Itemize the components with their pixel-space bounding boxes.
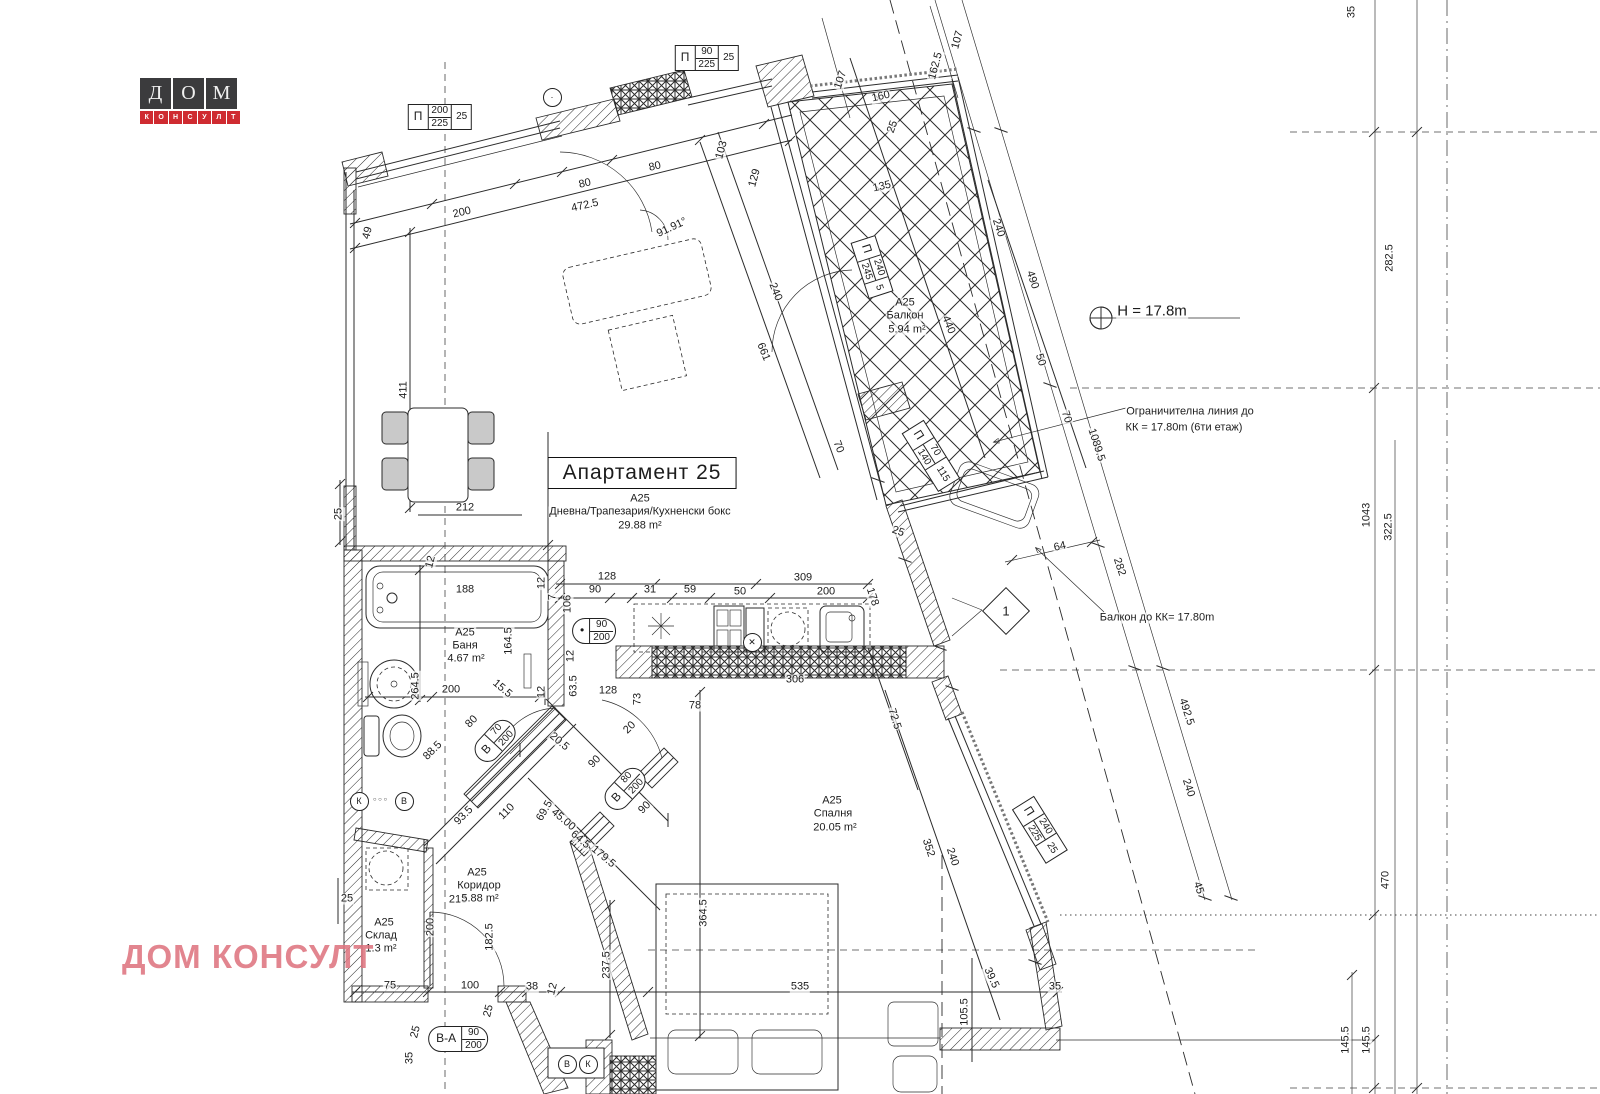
dim-label: 440 bbox=[939, 314, 957, 337]
circle-symbol: ✕ bbox=[743, 633, 762, 652]
dim-label: 164.5 bbox=[504, 626, 515, 656]
room-label: Дневна/Трапезария/Кухненски бокс bbox=[548, 507, 731, 518]
dim-label: 160 bbox=[870, 89, 892, 104]
dim-label: 93.5 bbox=[452, 804, 476, 828]
circle-symbol: В bbox=[558, 1055, 577, 1074]
dim-label: 25 bbox=[334, 507, 345, 521]
dim-label: 182.5 bbox=[485, 922, 496, 952]
annotation: Ограничителна линия до bbox=[1125, 407, 1255, 418]
dim-label: 535 bbox=[790, 982, 810, 993]
apartment-title: Апартамент 25 bbox=[548, 457, 737, 489]
dim-label: 70 bbox=[830, 438, 846, 455]
dim-label: 240 bbox=[766, 281, 784, 304]
dim-label: 145.5 bbox=[1362, 1025, 1373, 1055]
logo-letter: О bbox=[173, 78, 204, 109]
room-label: 4.67 m² bbox=[446, 654, 485, 665]
dim-label: 100 bbox=[460, 981, 480, 992]
logo-sub-letter: С bbox=[183, 111, 196, 124]
dim-label: 411 bbox=[399, 380, 410, 400]
dim-label: 128 bbox=[597, 572, 617, 583]
dim-label: 50 bbox=[733, 587, 747, 598]
dim-label: 59 bbox=[683, 585, 697, 596]
circle-symbol: В bbox=[395, 792, 414, 811]
dim-label: 200 bbox=[426, 917, 437, 937]
dim-label: 661 bbox=[754, 341, 772, 364]
dim-label: 492.5 bbox=[1176, 696, 1196, 727]
dim-label: 105.5 bbox=[960, 997, 971, 1027]
dim-label: 38 bbox=[525, 982, 539, 993]
dim-label: 240 bbox=[1180, 777, 1197, 800]
circle-symbol: К bbox=[350, 792, 369, 811]
dim-label: 240 bbox=[944, 846, 961, 869]
dim-label: 135 bbox=[871, 179, 893, 194]
dim-label: 73 bbox=[633, 692, 644, 706]
door-tag: В-А90200 bbox=[428, 1026, 488, 1052]
dim-label: 25 bbox=[889, 524, 906, 539]
room-label: Баня bbox=[451, 641, 478, 652]
room-label: Коридор bbox=[456, 881, 501, 892]
dim-label: 78 bbox=[688, 701, 702, 712]
dim-label: 200 bbox=[441, 685, 461, 696]
room-label: А25 bbox=[821, 796, 843, 807]
dim-label: 88.5 bbox=[421, 739, 445, 763]
dim-label: 12 bbox=[537, 576, 548, 590]
room-label: Балкон bbox=[886, 311, 925, 322]
dim-label: 106 bbox=[563, 594, 574, 614]
dim-label: 1043 bbox=[1362, 502, 1373, 528]
dim-label: 162.5 bbox=[927, 50, 945, 81]
room-label: А25 bbox=[466, 868, 488, 879]
height-annotation: H = 17.8m bbox=[1116, 304, 1188, 319]
room-label: 5.88 m² bbox=[460, 894, 499, 905]
dim-label: 90 bbox=[586, 753, 604, 771]
dim-label: 1089.5 bbox=[1085, 426, 1106, 463]
logo-letter: Д bbox=[140, 78, 171, 109]
logo-sub-letter: О bbox=[154, 111, 167, 124]
dim-label: 25 bbox=[409, 1024, 423, 1041]
dim-label: 240 bbox=[990, 217, 1007, 240]
room-label: 5.94 m² bbox=[887, 325, 926, 336]
dim-label: 200 bbox=[816, 587, 836, 598]
room-label: 20.05 m² bbox=[812, 823, 857, 834]
dim-label: 35 bbox=[1048, 982, 1062, 993]
dim-label: 309 bbox=[793, 573, 813, 584]
dim-label: 12 bbox=[537, 685, 548, 699]
window-tag: П2402455 bbox=[851, 235, 894, 299]
dim-label: 12 bbox=[424, 554, 438, 571]
dim-label: 64.5 bbox=[567, 828, 592, 851]
annotation: Балкон до КК= 17.80m bbox=[1099, 613, 1216, 624]
room-label: А25 bbox=[629, 494, 651, 505]
room-label: А25 bbox=[373, 918, 395, 929]
dim-label: 75 bbox=[383, 981, 397, 992]
circle-symbol: · bbox=[543, 88, 562, 107]
window-tag: П24022525 bbox=[1012, 796, 1068, 864]
dim-label: 188 bbox=[455, 585, 475, 596]
dim-label: 179.5 bbox=[588, 843, 618, 870]
watermark-text: ДОМ КОНСУЛТ bbox=[122, 938, 374, 976]
dim-label: 20 bbox=[621, 719, 639, 737]
dim-label: 282 bbox=[1111, 556, 1128, 579]
company-logo: ДОМКОНСУЛТ bbox=[140, 78, 240, 124]
dim-label: 20.5 bbox=[546, 730, 571, 753]
dim-label: 80 bbox=[463, 713, 481, 731]
dim-label: 7 bbox=[548, 593, 559, 601]
dim-label: 306 bbox=[785, 675, 805, 686]
dim-label: 264.5 bbox=[411, 671, 422, 701]
logo-sub-letter: У bbox=[198, 111, 211, 124]
dim-label: 237.5 bbox=[602, 950, 613, 980]
dim-label: 64 bbox=[1052, 540, 1068, 554]
dim-label: 282.5 bbox=[1385, 243, 1396, 273]
dim-label: 103 bbox=[714, 139, 730, 162]
window-tag: П9022525 bbox=[675, 45, 739, 71]
room-label: А25 bbox=[454, 628, 476, 639]
logo-sub-letter: Т bbox=[227, 111, 240, 124]
dim-label: 25 bbox=[340, 894, 354, 905]
logo-sub-letter: Н bbox=[169, 111, 182, 124]
dim-label: 25 bbox=[482, 1003, 496, 1020]
dim-label: 470 bbox=[1381, 870, 1392, 890]
dim-label: 31 bbox=[643, 585, 657, 596]
dim-label: ○ ○ ○ bbox=[372, 797, 388, 803]
logo-sub-letter: Л bbox=[212, 111, 225, 124]
dim-label: 35 bbox=[405, 1051, 416, 1065]
dim-label: 472.5 bbox=[569, 197, 600, 214]
dim-label: 80 bbox=[647, 160, 663, 174]
dim-label: 490 bbox=[1024, 269, 1041, 292]
dim-label: 50 bbox=[1033, 352, 1048, 369]
annotation: КК = 17.80m (6ти етаж) bbox=[1125, 423, 1244, 434]
dim-label: 364.5 bbox=[699, 898, 710, 928]
dim-label: 107 bbox=[833, 69, 850, 92]
circle-symbol: К bbox=[579, 1055, 598, 1074]
dim-label: 212 bbox=[455, 503, 475, 514]
dim-label: 90 bbox=[636, 799, 654, 817]
dim-label: 178 bbox=[864, 586, 881, 609]
dim-label: 25 bbox=[885, 118, 900, 135]
dim-label: 49 bbox=[361, 225, 375, 242]
dim-label: 90 bbox=[588, 585, 602, 596]
window-tag: П70140115 bbox=[902, 420, 961, 493]
dim-label: 145.5 bbox=[1341, 1025, 1352, 1055]
dim-label: 72.5 bbox=[885, 706, 903, 732]
dim-label: 39.5 bbox=[981, 965, 1001, 991]
dim-label: 15.5 bbox=[489, 677, 514, 700]
dim-label: 12 bbox=[546, 981, 560, 998]
door-tag: •90200 bbox=[572, 618, 616, 644]
dim-label: 12 bbox=[566, 649, 577, 663]
dim-label: 322.5 bbox=[1384, 512, 1395, 542]
dim-label: 91.91° bbox=[654, 216, 689, 240]
room-label: 29.88 m² bbox=[617, 521, 662, 532]
blueprint-canvas: 492008080472.510312991.91°10716025135107… bbox=[0, 0, 1600, 1094]
dim-label: 352 bbox=[920, 837, 937, 860]
dim-label: 45 bbox=[1191, 880, 1206, 897]
dim-label: 70 bbox=[1059, 409, 1074, 426]
dim-label: 107 bbox=[950, 29, 966, 52]
logo-sub-letter: К bbox=[140, 111, 153, 124]
dim-label: 80 bbox=[577, 177, 593, 191]
dim-label: 128 bbox=[598, 686, 618, 697]
dim-label: 35 bbox=[1347, 5, 1358, 19]
dim-label: 200 bbox=[451, 205, 473, 220]
plan-labels: 492008080472.510312991.91°10716025135107… bbox=[0, 0, 1600, 1094]
dim-label: 63.5 bbox=[569, 674, 580, 697]
dim-label: 129 bbox=[747, 167, 763, 190]
detail-marker: 1 bbox=[982, 587, 1030, 635]
room-label: Спалня bbox=[813, 809, 853, 820]
logo-letter: М bbox=[206, 78, 237, 109]
dim-label: 110 bbox=[496, 801, 518, 823]
room-label: А25 bbox=[894, 298, 916, 309]
window-tag: П20022525 bbox=[408, 104, 472, 130]
